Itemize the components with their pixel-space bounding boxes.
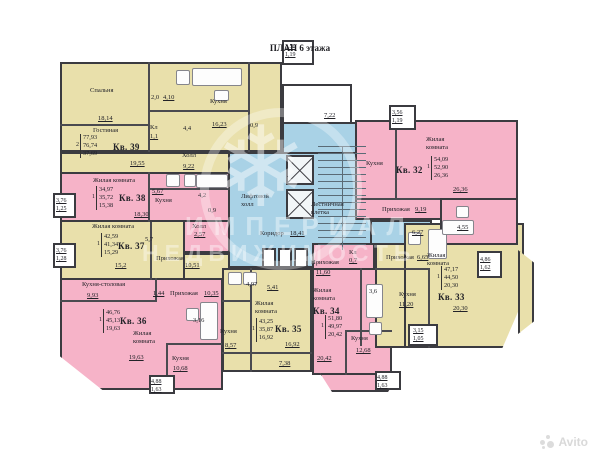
room-label: 7,38: [279, 360, 290, 368]
room-label: 11,60: [316, 269, 330, 277]
toilet-icon: [456, 206, 469, 218]
room-label: 9,93: [87, 292, 98, 300]
room-label: Спальня: [90, 87, 113, 95]
entrance-tambour: [282, 84, 352, 124]
apartment-38-hall: [183, 220, 230, 253]
room-label: Кухня: [172, 355, 189, 363]
room-label: 4,10: [163, 94, 174, 102]
wall: [355, 198, 440, 200]
room-label: 4,55: [457, 224, 468, 232]
balcony-area-label: 3,56 1,19: [392, 109, 403, 125]
room-label: 20,30: [453, 305, 468, 313]
room-label: 4,97: [246, 281, 257, 289]
room-label: Кухня: [220, 328, 237, 336]
room-label: 11,20: [399, 301, 413, 309]
apartment-number-label: Кв. 32: [396, 165, 423, 176]
room-label: 1,1: [150, 133, 158, 141]
wall: [60, 300, 156, 302]
room-label: Кухня-столовая: [82, 281, 125, 289]
room-label: Лестничная клетка: [311, 201, 344, 217]
room-label: 20,42: [317, 355, 332, 363]
apartment-number-label: Кв. 39: [113, 142, 140, 153]
wall: [166, 343, 222, 345]
room-label: Кухня: [366, 160, 383, 168]
floor-plan-image: ПЛАН 6 этажа: [0, 0, 600, 455]
room-label: 5,41: [267, 284, 278, 292]
wall: [222, 300, 252, 302]
apartment-areas-label: 154,09 52,90 26,36: [427, 156, 448, 180]
room-label: 3,16: [193, 317, 204, 325]
room-label: 0,9: [208, 207, 216, 215]
wall: [248, 62, 250, 152]
room-label: Кухня: [210, 98, 227, 106]
toilet-icon: [369, 322, 382, 335]
room-label: 10,51: [185, 262, 200, 270]
wall: [148, 110, 248, 112]
room-label: 7,22: [324, 112, 335, 120]
apartment-areas-label: 147,17 44,50 20,30: [437, 266, 458, 290]
room-label: Холл: [192, 223, 206, 231]
room-label: Жилая комната: [92, 223, 134, 231]
room-label: Кухня: [399, 291, 416, 299]
apartment-33-bay: [518, 250, 534, 334]
room-label: Кухня: [155, 197, 172, 205]
elevator-shaft: [286, 189, 314, 219]
wall: [395, 122, 397, 198]
room-label: 0,9: [250, 122, 258, 130]
room-label: 9,19: [415, 206, 426, 214]
apartment-areas-label: 277,93 76,74 37,69: [76, 134, 97, 158]
apartment-areas-label: 146,76 45,13 19,63: [99, 309, 120, 333]
room-label: Кл: [349, 249, 357, 257]
balcony-area-label: 3,76 1,28: [56, 247, 67, 263]
room-label: Прихожая: [386, 254, 414, 262]
room-label: Коридор: [260, 230, 284, 238]
room-label: 19,63: [129, 354, 144, 362]
room-label: Кухня: [351, 335, 368, 343]
room-label: 9,22: [183, 163, 194, 171]
room-label: 10,35: [204, 290, 219, 298]
room-label: 16,23: [212, 121, 227, 129]
room-label: 26,36: [453, 186, 468, 194]
apartment-number-label: Кв. 37: [118, 241, 145, 252]
toilet-icon: [176, 70, 190, 85]
room-label: Жилая комната: [133, 330, 155, 346]
room-label: 2,0: [151, 94, 159, 102]
room-label: 6,27: [412, 229, 423, 237]
room-label: 1,44: [153, 290, 164, 298]
shaft-box: [294, 248, 308, 268]
room-label: 4,2: [198, 192, 206, 200]
room-label: 5,67: [152, 188, 163, 196]
shaft-box: [278, 248, 292, 268]
room-label: 18,30: [134, 211, 149, 219]
room-label: Лифтовой холл: [241, 193, 269, 209]
wall: [222, 352, 312, 354]
balcony-area-label: 4,86 1,62: [480, 256, 491, 272]
apartment-areas-label: 151,80 49,97 20,42: [321, 315, 342, 339]
room-label: Жилая комната: [426, 136, 448, 152]
staircase: [318, 146, 366, 250]
wall: [345, 330, 347, 375]
apartment-areas-label: 143,25 35,87 16,92: [252, 318, 273, 342]
balcony-area-label: 3,76 1,25: [56, 197, 67, 213]
bathtub-icon: [192, 68, 242, 86]
room-label: Жилая комната: [93, 177, 135, 185]
room-label: Жилая комната: [255, 300, 277, 316]
room-label: Жилая комната: [313, 287, 335, 303]
room-label: 16,92: [285, 341, 300, 349]
wall: [375, 268, 430, 270]
room-label: 5,7: [145, 236, 153, 244]
apartment-number-label: Кв. 33: [438, 292, 465, 303]
room-label: Кл: [150, 124, 158, 132]
room-label: 8,57: [225, 342, 236, 350]
sink-icon: [184, 174, 196, 187]
wall: [60, 124, 148, 126]
room-label: Прихожая: [311, 259, 339, 267]
room-label: Прихожая: [156, 255, 184, 263]
apartment-number-label: Кв. 36: [120, 316, 147, 327]
balcony-area-label: 3,15 1,05: [413, 327, 424, 343]
room-label: 19,55: [130, 160, 145, 168]
shaft-box: [262, 248, 276, 268]
brand-watermark: Avito: [540, 435, 588, 449]
room-label: 18,14: [98, 115, 113, 123]
bathtub-icon: [196, 174, 228, 188]
toilet-icon: [166, 174, 180, 187]
balcony-area-label: 4,88 1,63: [151, 378, 162, 394]
wall: [150, 222, 152, 280]
room-label: 18,41: [290, 230, 305, 238]
room-label: 2,57: [194, 231, 205, 239]
sink-icon: [228, 272, 242, 285]
room-label: Прихожая: [382, 206, 410, 214]
apartment-areas-label: 134,97 35,72 15,38: [92, 186, 113, 210]
brand-name: Avito: [558, 435, 588, 449]
apartment-number-label: Кв. 38: [119, 193, 146, 204]
room-label: 10,68: [173, 365, 188, 373]
room-label: 12,68: [356, 347, 371, 355]
room-label: Холл: [182, 152, 196, 160]
room-label: 4,4: [183, 125, 191, 133]
apartment-number-label: Кв. 35: [275, 324, 302, 335]
page-title: ПЛАН 6 этажа: [0, 43, 600, 53]
avito-logo-icon: [540, 435, 554, 449]
elevator-shaft: [286, 155, 314, 185]
room-label: 15,2: [115, 262, 126, 270]
apartment-areas-label: 142,59 41,34 15,29: [97, 233, 118, 257]
balcony-area-label: 4,88 1,63: [377, 374, 388, 390]
room-label: 3,6: [369, 288, 377, 296]
room-label: 0,7: [349, 257, 357, 265]
room-label: Прихожая: [170, 290, 198, 298]
